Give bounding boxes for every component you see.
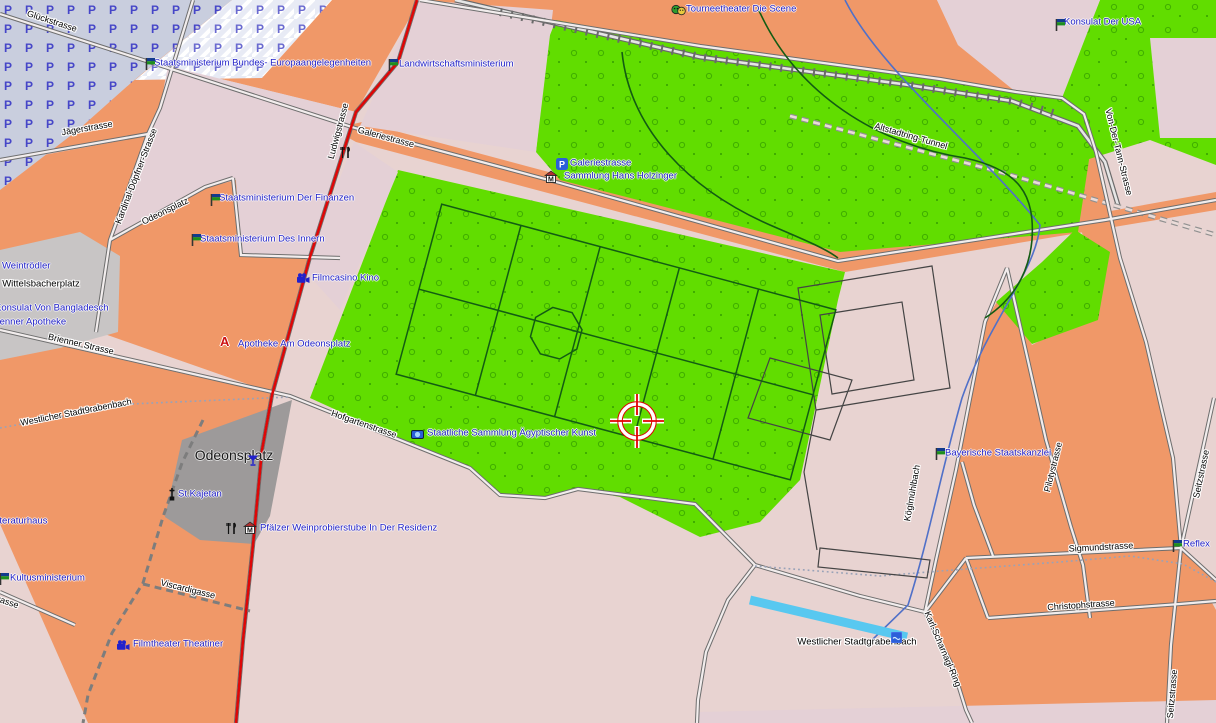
pharmacy-icon[interactable]: A [220, 336, 229, 348]
map-canvas[interactable]: P P [0, 0, 1216, 723]
flag-icon[interactable] [1054, 18, 1066, 32]
restaurant-icon[interactable] [340, 146, 351, 159]
flag-icon[interactable] [934, 447, 946, 461]
map-viewport[interactable]: P P [0, 0, 1216, 723]
cinema-icon[interactable] [296, 273, 310, 284]
water-icon[interactable] [891, 632, 902, 643]
attraction-icon[interactable] [411, 429, 424, 439]
museum-icon[interactable]: M [544, 170, 558, 184]
svg-text:P: P [559, 160, 565, 170]
flag-icon[interactable] [387, 58, 399, 72]
restaurant-icon[interactable] [226, 522, 237, 535]
parking-icon[interactable]: P [556, 158, 568, 170]
museum-icon[interactable]: M [243, 521, 257, 535]
svg-text:M: M [247, 528, 253, 535]
svg-text:M: M [548, 177, 554, 184]
church-icon[interactable] [167, 487, 177, 501]
cinema-icon[interactable] [116, 640, 130, 651]
flag-icon[interactable] [144, 57, 156, 71]
flag-icon[interactable] [209, 193, 221, 207]
theater-icon[interactable] [671, 4, 686, 16]
flag-icon[interactable] [190, 233, 202, 247]
bar-icon[interactable] [248, 455, 258, 466]
flag-icon[interactable] [0, 572, 10, 586]
flag-icon[interactable] [1171, 539, 1183, 553]
